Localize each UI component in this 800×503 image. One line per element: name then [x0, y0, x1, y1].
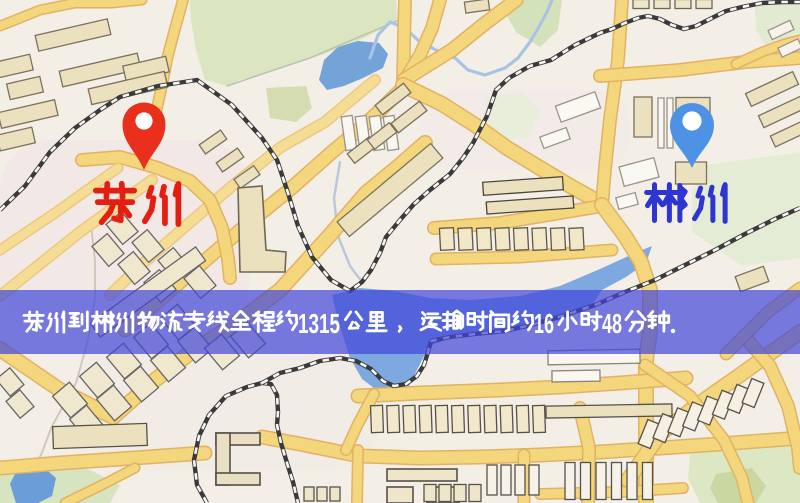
- svg-text:48: 48: [602, 308, 622, 339]
- svg-text:16: 16: [534, 308, 554, 339]
- svg-text:1315: 1315: [298, 308, 340, 339]
